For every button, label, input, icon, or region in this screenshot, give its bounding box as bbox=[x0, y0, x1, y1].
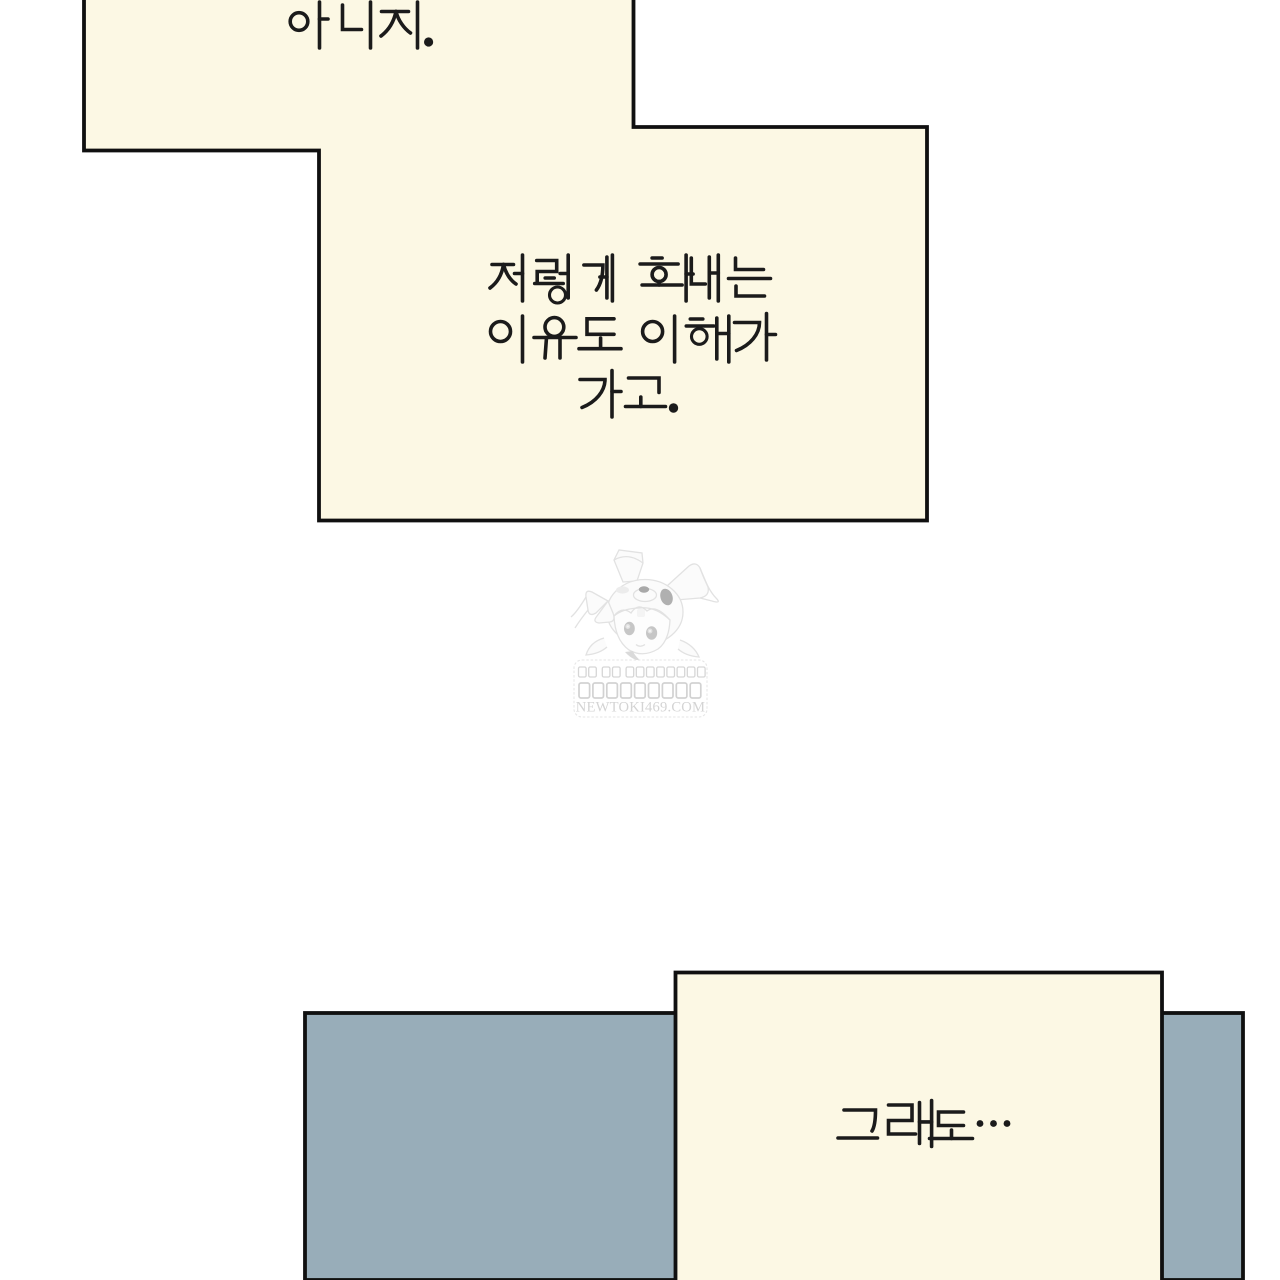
svg-text:NEWTOKI469.COM: NEWTOKI469.COM bbox=[576, 700, 705, 716]
